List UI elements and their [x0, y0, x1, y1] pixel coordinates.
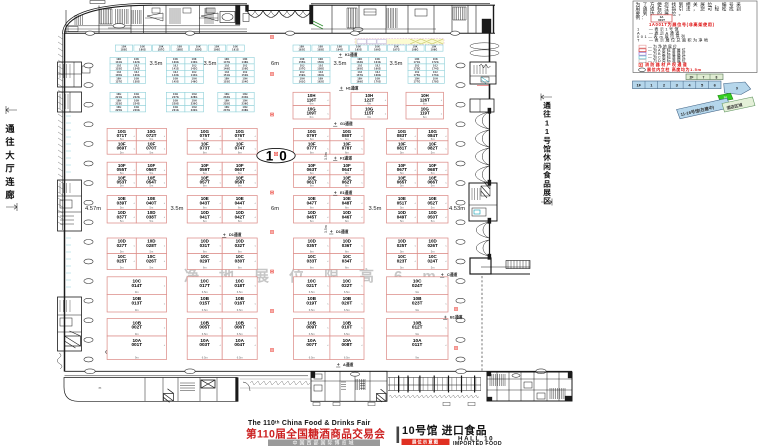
svg-text:142G: 142G	[191, 67, 198, 70]
svg-text:6.5m: 6.5m	[237, 355, 244, 359]
svg-text:003T: 003T	[199, 342, 210, 347]
svg-text:6.5m: 6.5m	[344, 332, 351, 336]
svg-text:047T: 047T	[307, 200, 318, 205]
svg-text:026T: 026T	[146, 258, 157, 263]
svg-text:C通道: C通道	[447, 272, 458, 277]
svg-text:082T: 082T	[427, 146, 438, 151]
svg-text:001T: 001T	[131, 342, 142, 347]
svg-text:008T: 008T	[342, 342, 353, 347]
svg-text:146G: 146G	[191, 80, 198, 83]
svg-text:152G: 152G	[242, 74, 249, 77]
svg-text:170G: 170G	[374, 80, 381, 83]
svg-text:展位示意图: 展位示意图	[412, 439, 439, 446]
svg-text:037T: 037T	[117, 214, 128, 219]
svg-text:199G: 199G	[431, 48, 438, 51]
svg-text:厅: 厅	[5, 164, 14, 174]
svg-text:6m: 6m	[271, 61, 279, 67]
svg-text:155G: 155G	[299, 61, 306, 64]
svg-text:A通道: A通道	[343, 362, 354, 367]
svg-text:区: 区	[543, 197, 551, 206]
svg-text:237G: 237G	[223, 109, 230, 112]
svg-text:闲: 闲	[543, 161, 551, 171]
svg-text:165G: 165G	[356, 67, 363, 70]
svg-text:024T: 024T	[412, 283, 423, 288]
svg-text:006T: 006T	[234, 325, 245, 330]
svg-text:休: 休	[542, 152, 551, 162]
svg-text:E1通道: E1通道	[340, 190, 352, 195]
svg-text:021T: 021T	[306, 283, 317, 288]
svg-text:185G: 185G	[121, 48, 128, 51]
svg-text:116T: 116T	[307, 97, 317, 102]
svg-text:139G: 139G	[172, 61, 179, 64]
svg-text:第110届全国糖酒商品交易会: 第110届全国糖酒商品交易会	[246, 428, 385, 441]
svg-text:178G: 178G	[432, 80, 439, 83]
svg-text:036T: 036T	[342, 243, 353, 248]
svg-text:3.5m: 3.5m	[369, 206, 382, 212]
svg-text:040T: 040T	[146, 200, 157, 205]
svg-text:176G: 176G	[432, 74, 439, 77]
svg-text:馆: 馆	[543, 144, 551, 154]
svg-text:038T: 038T	[146, 214, 157, 219]
svg-text:163G: 163G	[356, 61, 363, 64]
svg-text:136G: 136G	[133, 74, 140, 77]
svg-text:168G: 168G	[374, 74, 381, 77]
svg-text:The 110th China Food & Drinks: The 110th China Food & Drinks Fair	[248, 419, 371, 427]
svg-text:222G: 222G	[133, 96, 140, 99]
svg-text:187G: 187G	[158, 48, 165, 51]
svg-text:G1通道: G1通道	[340, 121, 353, 126]
svg-text:196G: 196G	[374, 48, 381, 51]
svg-text:012T: 012T	[412, 325, 423, 330]
svg-text:中国西部国际博览城: 中国西部国际博览城	[292, 440, 355, 446]
svg-text:号: 号	[543, 136, 551, 145]
svg-text:035T: 035T	[307, 243, 318, 248]
svg-text:3.5m: 3.5m	[204, 61, 217, 67]
svg-text:186G: 186G	[139, 48, 146, 51]
svg-text:161G: 161G	[299, 80, 306, 83]
svg-text:039T: 039T	[117, 200, 128, 205]
svg-text:044T: 044T	[235, 200, 246, 205]
svg-text:174G: 174G	[432, 67, 439, 70]
svg-text:049T: 049T	[397, 214, 408, 219]
svg-text:169G: 169G	[356, 80, 363, 83]
svg-text:081T: 081T	[397, 146, 408, 151]
svg-text:6.5m: 6.5m	[202, 308, 209, 312]
svg-text:3.5m: 3.5m	[334, 61, 347, 67]
svg-text:品: 品	[543, 179, 551, 188]
svg-text:224G: 224G	[133, 102, 140, 105]
svg-text:151G: 151G	[223, 74, 230, 77]
svg-text:173G: 173G	[414, 67, 421, 70]
svg-text:016T: 016T	[234, 301, 245, 306]
svg-text:195G: 195G	[355, 48, 362, 51]
svg-text:展: 展	[543, 188, 551, 197]
svg-text:231G: 231G	[172, 109, 179, 112]
svg-text:236G: 236G	[242, 102, 249, 105]
svg-text:7: 7	[703, 75, 705, 79]
svg-text:159G: 159G	[299, 74, 306, 77]
svg-text:028T: 028T	[146, 243, 157, 248]
svg-text:6.5m: 6.5m	[344, 308, 351, 312]
svg-text:023T: 023T	[397, 258, 408, 263]
svg-text:025T: 025T	[117, 258, 128, 263]
svg-text:3.5m: 3.5m	[390, 61, 403, 67]
svg-text:191G: 191G	[232, 48, 239, 51]
svg-text:167G: 167G	[356, 74, 363, 77]
svg-text:013T: 013T	[131, 301, 142, 306]
svg-text:6.5m: 6.5m	[344, 290, 351, 294]
svg-text:廊: 廊	[5, 189, 14, 200]
svg-text:6.5m: 6.5m	[309, 308, 316, 312]
svg-text:238G: 238G	[242, 109, 249, 112]
svg-text:1: 1	[266, 148, 274, 163]
svg-text:往: 往	[5, 136, 14, 147]
svg-text:223G: 223G	[115, 102, 122, 105]
svg-text:149G: 149G	[223, 67, 230, 70]
svg-text:228G: 228G	[191, 96, 198, 99]
svg-text:131G: 131G	[115, 61, 122, 64]
svg-text:234G: 234G	[242, 96, 249, 99]
svg-text:164G: 164G	[374, 61, 381, 64]
svg-text:126T: 126T	[420, 97, 430, 102]
svg-text:8: 8	[716, 75, 718, 79]
svg-text:例：: 例：	[636, 14, 647, 21]
svg-text:048T: 048T	[342, 200, 353, 205]
svg-text:2F: 2F	[690, 75, 694, 79]
svg-text:050T: 050T	[427, 214, 438, 219]
svg-text:020T: 020T	[342, 301, 353, 306]
svg-text:029T: 029T	[200, 258, 211, 263]
svg-text:6.5m: 6.5m	[344, 355, 351, 359]
svg-text:226G: 226G	[133, 109, 140, 112]
svg-text:134G: 134G	[133, 67, 140, 70]
svg-text:198G: 198G	[412, 48, 419, 51]
svg-text:070T: 070T	[146, 146, 157, 151]
svg-text:153G: 153G	[223, 80, 230, 83]
svg-text:002T: 002T	[131, 325, 142, 330]
svg-text:160G: 160G	[317, 74, 324, 77]
svg-text:H1通道: H1通道	[346, 86, 359, 91]
svg-text:027T: 027T	[117, 243, 128, 248]
svg-text:077T: 077T	[307, 146, 318, 151]
svg-text:004T: 004T	[234, 342, 245, 347]
svg-text:IMPORTED FOOD: IMPORTED FOOD	[453, 441, 502, 446]
svg-text:1F: 1F	[636, 83, 641, 88]
svg-text:230G: 230G	[191, 102, 198, 105]
svg-text:140G: 140G	[191, 61, 198, 64]
svg-text:6.5m: 6.5m	[309, 332, 316, 336]
svg-text:177G: 177G	[414, 80, 421, 83]
svg-text:156G: 156G	[317, 61, 324, 64]
svg-text:010T: 010T	[342, 325, 353, 330]
svg-text:023T: 023T	[412, 301, 423, 306]
svg-text:232G: 232G	[191, 109, 198, 112]
svg-text:D1通道: D1通道	[336, 229, 349, 234]
svg-text:109T: 109T	[307, 111, 317, 116]
svg-text:074T: 074T	[235, 146, 246, 151]
svg-text:3.5m: 3.5m	[150, 61, 163, 67]
svg-text:030T: 030T	[235, 258, 246, 263]
svg-text:4.57m: 4.57m	[85, 206, 101, 212]
svg-text:m: m	[99, 386, 102, 390]
svg-text:122T: 122T	[364, 97, 374, 102]
svg-text:6.5m: 6.5m	[237, 308, 244, 312]
svg-text:225G: 225G	[115, 109, 122, 112]
svg-text:133G: 133G	[115, 67, 122, 70]
svg-text:119T: 119T	[420, 111, 430, 116]
svg-text:大: 大	[5, 149, 15, 160]
svg-text:197G: 197G	[393, 48, 400, 51]
svg-text:015T: 015T	[199, 301, 210, 306]
svg-text:022T: 022T	[342, 283, 353, 288]
svg-text:051T: 051T	[397, 200, 408, 205]
svg-text:6.5m: 6.5m	[202, 355, 209, 359]
svg-text:025T: 025T	[397, 243, 408, 248]
svg-text:143G: 143G	[172, 74, 179, 77]
svg-text:D1通道: D1通道	[229, 232, 242, 237]
svg-text:144G: 144G	[191, 74, 198, 77]
svg-text:227G: 227G	[172, 96, 179, 99]
svg-text:005T: 005T	[199, 325, 210, 330]
svg-text:132G: 132G	[133, 61, 140, 64]
svg-text:145G: 145G	[172, 80, 179, 83]
svg-text:通: 通	[5, 123, 15, 134]
svg-text:052T: 052T	[427, 200, 438, 205]
svg-text:193G: 193G	[317, 48, 324, 51]
svg-text:033T: 033T	[307, 258, 318, 263]
svg-text:014T: 014T	[131, 283, 142, 288]
svg-text:018T: 018T	[234, 283, 245, 288]
svg-text:045T: 045T	[307, 214, 318, 219]
svg-text:6.5m: 6.5m	[309, 290, 316, 294]
svg-text:233G: 233G	[223, 96, 230, 99]
svg-text:往: 往	[543, 109, 551, 119]
svg-text:007T: 007T	[306, 342, 317, 347]
svg-text:171G: 171G	[414, 61, 421, 64]
svg-text:T —表示展位总面积为净地: T —表示展位总面积为净地	[637, 37, 709, 43]
svg-text:190G: 190G	[214, 48, 221, 51]
svg-text:046T: 046T	[342, 214, 353, 219]
svg-text:221G: 221G	[115, 96, 122, 99]
svg-text:6.5m: 6.5m	[202, 290, 209, 294]
svg-text:032T: 032T	[235, 243, 246, 248]
svg-text:6.5m: 6.5m	[202, 332, 209, 336]
svg-text:175G: 175G	[414, 74, 421, 77]
svg-text:展位内立柱 高度均为1.5m: 展位内立柱 高度均为1.5m	[646, 66, 702, 72]
svg-text:043T: 043T	[200, 200, 211, 205]
svg-text:F1通道: F1通道	[340, 156, 352, 161]
svg-text:041T: 041T	[200, 214, 211, 219]
svg-text:3.5m: 3.5m	[324, 152, 328, 160]
svg-text:154G: 154G	[242, 80, 249, 83]
svg-text:024T: 024T	[427, 258, 438, 263]
svg-text:078T: 078T	[342, 146, 353, 151]
svg-text:6.5m: 6.5m	[237, 290, 244, 294]
svg-text:189G: 189G	[195, 48, 202, 51]
svg-text:162G: 162G	[317, 80, 324, 83]
svg-text:141G: 141G	[172, 67, 179, 70]
svg-text:6.5m: 6.5m	[237, 332, 244, 336]
svg-text:157G: 157G	[299, 67, 306, 70]
svg-text:K1通道: K1通道	[345, 52, 358, 57]
svg-text:148G: 148G	[242, 61, 249, 64]
svg-text:073T: 073T	[200, 146, 211, 151]
svg-text:158G: 158G	[317, 67, 324, 70]
svg-text:9: 9	[736, 87, 738, 91]
svg-text:031T: 031T	[200, 243, 211, 248]
svg-text:017T: 017T	[199, 283, 210, 288]
svg-text:019T: 019T	[306, 301, 317, 306]
svg-text:通: 通	[543, 100, 551, 110]
svg-text:6m: 6m	[271, 206, 279, 212]
svg-text:194G: 194G	[336, 48, 343, 51]
svg-text:138G: 138G	[133, 80, 140, 83]
svg-text:009T: 009T	[306, 325, 317, 330]
svg-text:115T: 115T	[364, 111, 374, 116]
svg-text:011T: 011T	[412, 342, 423, 347]
svg-text:188G: 188G	[176, 48, 183, 51]
svg-text:026T: 026T	[427, 243, 438, 248]
svg-text:3.5m: 3.5m	[324, 225, 328, 233]
svg-text:3.5m: 3.5m	[171, 206, 184, 212]
svg-text:172G: 172G	[432, 61, 439, 64]
svg-text:0: 0	[279, 148, 287, 163]
svg-text:B1通道: B1通道	[450, 315, 463, 320]
svg-text:4.53m: 4.53m	[449, 206, 465, 212]
svg-text:192G: 192G	[298, 48, 305, 51]
svg-text:6.5m: 6.5m	[309, 355, 316, 359]
svg-text:137G: 137G	[115, 80, 122, 83]
svg-text:235G: 235G	[223, 102, 230, 105]
svg-text:166G: 166G	[374, 67, 381, 70]
svg-text:147G: 147G	[223, 61, 230, 64]
svg-text:食: 食	[543, 170, 551, 180]
svg-text:034T: 034T	[342, 258, 353, 263]
svg-text:135G: 135G	[115, 74, 122, 77]
svg-text:069T: 069T	[117, 146, 128, 151]
svg-text:150G: 150G	[242, 67, 249, 70]
svg-text:229G: 229G	[172, 102, 179, 105]
svg-text:连: 连	[5, 176, 15, 187]
svg-text:042T: 042T	[235, 214, 246, 219]
